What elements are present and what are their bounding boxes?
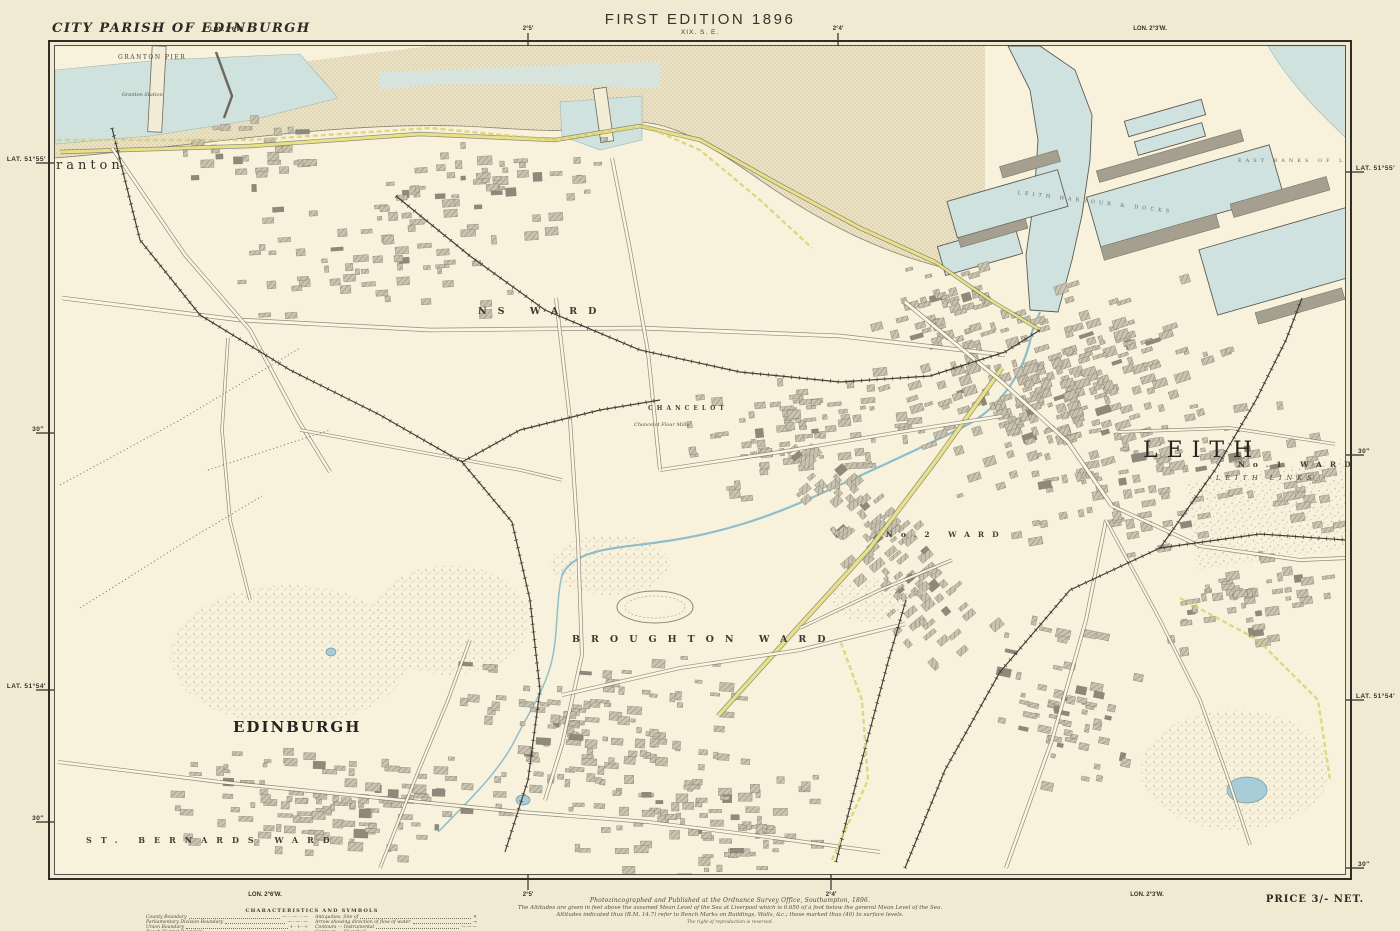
top-lon-right: LON. 2°3′W. <box>1133 26 1167 32</box>
sports-oval <box>617 591 693 623</box>
imprint-line-3: Altitudes indicated thus (B.M. 14.7) ref… <box>556 912 903 918</box>
top-tick-2-4: 2°4′ <box>833 26 844 32</box>
sheet-number: XIX. S. E. <box>681 29 719 36</box>
top-tick-2-5: 2°5′ <box>523 26 534 32</box>
right-tick-30-low: 30″ <box>1358 861 1370 868</box>
bottom-tick-2-5: 2°5′ <box>523 892 534 898</box>
bottom-lon-left: LON. 2°6′W. <box>248 892 282 898</box>
bottom-lon-right: LON. 2°3′W. <box>1130 892 1164 898</box>
imprint-line-2: The Altitudes are given in feet above th… <box>518 905 942 911</box>
map-artwork <box>0 0 1400 931</box>
imprint-line-1: Photozincographed and Published at the O… <box>590 897 870 904</box>
right-lat-bottom: LAT. 51°54′ <box>1356 693 1395 700</box>
legend-characteristics: CHARACTERISTICS AND SYMBOLS County Bound… <box>146 908 478 931</box>
left-lat-bottom: LAT. 51°54′ <box>2 683 46 690</box>
right-lat-top: LAT. 51°55′ <box>1356 165 1395 172</box>
legend-title: CHARACTERISTICS AND SYMBOLS <box>146 908 478 914</box>
left-lat-top: LAT. 51°55′ <box>2 156 46 163</box>
map-sheet: CITY PARISH OF EDINBURGH LON. 2°6′W. 2°5… <box>0 0 1400 931</box>
imprint-line-4: The right of reproduction is reserved. <box>687 920 773 925</box>
edition-title: FIRST EDITION 1896 <box>605 11 796 28</box>
right-tick-30-mid: 30″ <box>1358 448 1370 455</box>
legend-column-left: County Boundary—··—··—Parliamentary Divi… <box>146 915 309 931</box>
parish-title: CITY PARISH OF EDINBURGH <box>52 21 311 36</box>
left-tick-30-mid: 30″ <box>24 426 44 433</box>
parish-lon: LON. 2°6′W. <box>210 27 244 33</box>
price-note: PRICE 3/- NET. <box>1266 894 1364 905</box>
left-tick-30-low: 30″ <box>24 815 44 822</box>
legend-column-right: Antiquities, Site of✕Arrow showing direc… <box>315 915 478 931</box>
